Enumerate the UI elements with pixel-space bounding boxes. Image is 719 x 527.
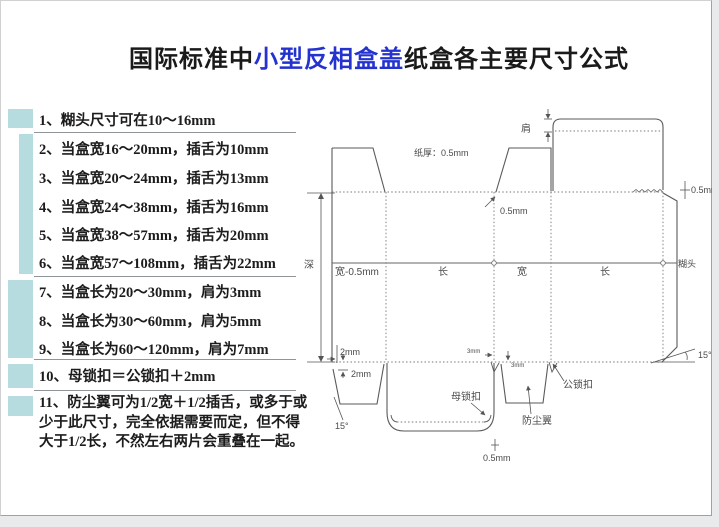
dim-2mm-a-label: 2mm <box>340 347 360 357</box>
dim-05-top-label: 0.5mm <box>500 206 528 216</box>
diagram-labels: 纸厚：0.5mm 肩 0.5mm 0.5mm 深 宽-0.5mm 长 宽 长 糊… <box>304 122 712 463</box>
dust-flap-top-left <box>332 148 385 192</box>
dust-wing-label: 防尘翼 <box>522 414 552 427</box>
panel-label-width1: 宽-0.5mm <box>335 265 379 278</box>
paper-thickness-label: 纸厚：0.5mm <box>414 147 469 158</box>
lock-notch-left <box>491 362 499 372</box>
female-lock-label: 母锁扣 <box>451 390 481 403</box>
angle-right-label: 15° <box>698 350 712 360</box>
cut-lines <box>332 119 677 431</box>
dim-3mm-a-label: 3mm <box>467 349 480 355</box>
glue-flap-outline <box>662 193 677 362</box>
panel-label-length2: 长 <box>600 266 610 278</box>
shoulder-label: 肩 <box>521 122 531 135</box>
dim-05-right-label: 0.5mm <box>691 185 712 195</box>
female-lock-slit-left <box>391 415 398 422</box>
dieline-diagram: 纸厚：0.5mm 肩 0.5mm 0.5mm 深 宽-0.5mm 长 宽 长 糊… <box>1 1 712 515</box>
male-lock-label: 公锁扣 <box>563 378 593 391</box>
glue-flap-label: 糊头 <box>678 258 696 269</box>
dim-05-bottom-label: 0.5mm <box>483 453 511 463</box>
dust-flap-top-right <box>496 148 551 192</box>
angle-left-label: 15° <box>335 421 349 431</box>
tuck-lid-outline <box>553 119 663 191</box>
dust-flap-bottom-right <box>501 364 548 403</box>
dim-2mm-b-label: 2mm <box>351 369 371 379</box>
slide-stage: 国际标准中小型反相盒盖纸盒各主要尺寸公式 1、糊头尺寸可在10～16mm 2、当… <box>0 0 719 527</box>
female-lock-slit-right <box>484 415 491 422</box>
depth-label: 深 <box>304 259 314 271</box>
dim-3mm-b-label: 3mm <box>511 363 524 369</box>
panel-label-length1: 长 <box>438 266 448 278</box>
slide: 国际标准中小型反相盒盖纸盒各主要尺寸公式 1、糊头尺寸可在10～16mm 2、当… <box>0 0 712 516</box>
panel-label-width2: 宽 <box>517 265 527 278</box>
lock-notch-right <box>549 362 557 372</box>
dimension-lines <box>307 109 695 451</box>
